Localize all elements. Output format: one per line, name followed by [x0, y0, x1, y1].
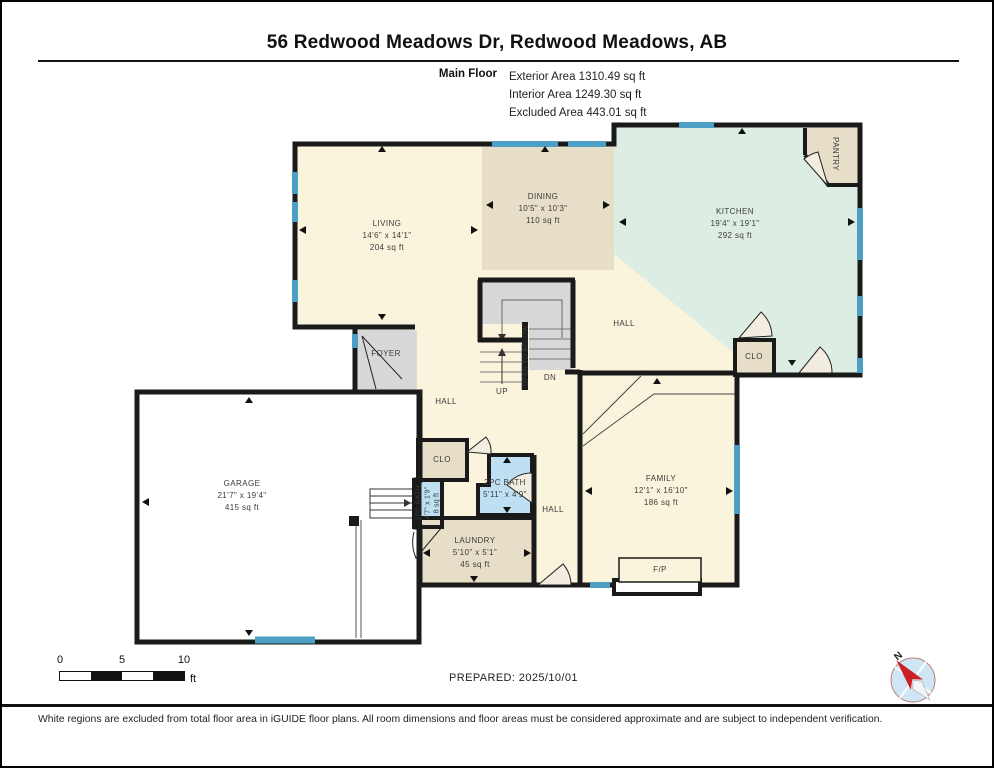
room-label-kitchen: KITCHEN 19'4" x 19'1" 292 sq ft [710, 206, 759, 242]
scale-tick-10: 10 [178, 654, 190, 666]
room-label-2pc-bath: 2PC BATH 5'11" x 4'9" [483, 477, 527, 501]
scale-segment [122, 672, 153, 680]
prepared-date: PREPARED: 2025/10/01 [449, 672, 578, 684]
room-label-family: FAMILY 12'1" x 16'10" 186 sq ft [634, 473, 688, 509]
room-label-clo-hall: CLO [433, 454, 451, 466]
room-label-foyer: FOYER [371, 348, 401, 360]
room-label-hall-lower: HALL [542, 504, 564, 516]
scale-segment [60, 672, 91, 680]
scale-bar [59, 671, 185, 681]
room-label-living: LIVING 14'6" x 14'1" 204 sq ft [362, 218, 411, 254]
room-label-hall-upper: HALL [613, 318, 635, 330]
scale-tick-5: 5 [119, 654, 125, 666]
fireplace-label: F/P [653, 564, 667, 576]
room-label-clo-kitchen: CLO [745, 351, 763, 363]
scale-segment [153, 672, 184, 680]
footer-divider [2, 704, 994, 707]
garage-post [349, 516, 359, 526]
floor-plan-page: 56 Redwood Meadows Dr, Redwood Meadows, … [0, 0, 994, 768]
stair-label-dn: DN [544, 372, 556, 384]
stair-label-open-to-below: OPEN TO BELOW [522, 325, 531, 386]
room-label-pantry: PANTRY [829, 137, 841, 171]
floor-plan-drawing [2, 2, 994, 768]
stair-label-up: UP [496, 386, 508, 398]
scale-tick-0: 0 [57, 654, 63, 666]
room-fills [137, 125, 860, 642]
room-label-laundry: LAUNDRY 5'10" x 5'1" 45 sq ft [453, 535, 497, 571]
room-label-1pc-bath: 1PC BATH 4'7" x 1'9" 8 sq ft [415, 485, 442, 520]
room-label-hall-left: HALL [435, 396, 457, 408]
disclaimer-text: White regions are excluded from total fl… [38, 714, 968, 725]
scale-segment [91, 672, 122, 680]
scale-unit: ft [190, 673, 196, 685]
room-label-dining: DINING 10'5" x 10'3" 110 sq ft [518, 191, 567, 227]
compass-icon [890, 655, 936, 705]
room-label-garage: GARAGE 21'7" x 19'4" 415 sq ft [217, 478, 266, 514]
